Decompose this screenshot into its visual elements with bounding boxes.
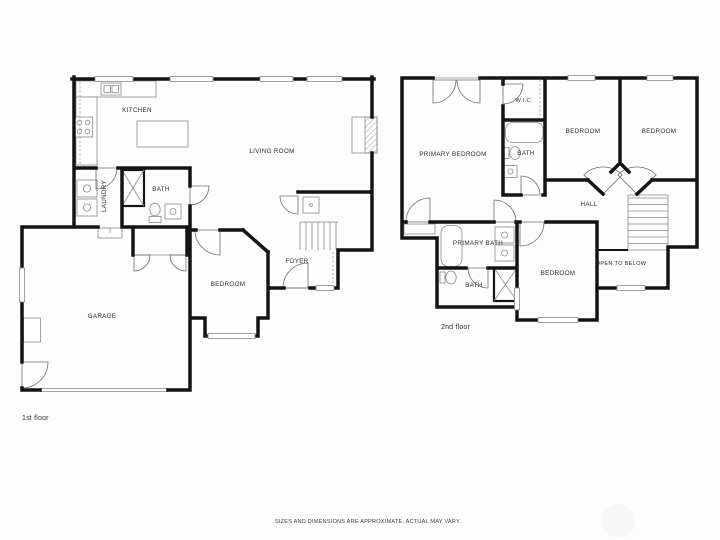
utility-box [24, 318, 41, 342]
garage-fixtures [24, 228, 188, 392]
bedroom-right-label: BEDROOM [642, 128, 677, 135]
primary-bath-label: PRIMARY BATH [453, 240, 503, 247]
doors-1st [22, 168, 308, 388]
stair-foyer-fixtures [284, 197, 338, 288]
wic-label: W.I.C. [515, 98, 532, 104]
floor1-caption: 1st floor [22, 415, 49, 422]
stair-closet-box [303, 197, 319, 213]
entry-door [283, 263, 308, 288]
primary-bedroom-label: PRIMARY BEDROOM [419, 151, 486, 158]
floor-plan-2nd: PRIMARY BEDROOM W.I.C. BATH BEDROOM BEDR… [402, 76, 697, 332]
open-to-below-label: OPEN TO BELOW [596, 261, 647, 267]
garage-closet-door-left [134, 255, 150, 271]
bathtub-icon [506, 123, 544, 143]
vanity-sink-icon [504, 166, 517, 178]
walls-2nd [402, 78, 697, 320]
bedroom-door [195, 230, 220, 255]
dryer-icon [77, 199, 97, 216]
watermark [601, 504, 635, 538]
bath-door [190, 186, 209, 205]
linen-shelf [404, 224, 435, 234]
bath1-label: BATH [152, 186, 170, 193]
garage-side-door [22, 362, 48, 388]
floor-plan-1st: KITCHEN LIVING ROOM BATH LAUNDRY BEDROOM… [20, 77, 378, 423]
laundry-fixtures [77, 180, 97, 216]
bedroom-bottom-door [520, 222, 544, 246]
stair-closet-door [280, 196, 298, 214]
bath-upper-label: BATH [517, 150, 535, 157]
floorplan-drawing: KITCHEN LIVING ROOM BATH LAUNDRY BEDROOM… [0, 0, 720, 540]
living-fixtures [352, 117, 377, 153]
staircase-icon [300, 222, 338, 250]
laundry-label: LAUNDRY [101, 179, 108, 212]
walls-1st [22, 77, 374, 390]
garage-door-icon [40, 388, 168, 391]
disclaimer-text: SIZES AND DIMENSIONS ARE APPROXIMATE, AC… [275, 519, 461, 525]
bedroom-left-door [584, 156, 622, 194]
floorplan-page: KITCHEN LIVING ROOM BATH LAUNDRY BEDROOM… [0, 0, 720, 540]
kitchen-label: KITCHEN [122, 107, 152, 114]
garage-label: GARAGE [88, 313, 117, 320]
bath-lower-label: BATH [465, 282, 483, 289]
hall-label: HALL [581, 201, 598, 208]
bath2-upper-fixtures [504, 80, 543, 178]
bedroom-right-door [618, 156, 656, 194]
staircase-icon [628, 195, 668, 250]
primary-bedroom-door-left [406, 198, 430, 222]
living-room-label: LIVING ROOM [249, 148, 294, 155]
bath-upper-door [521, 176, 540, 195]
floor2-caption: 2nd floor [441, 324, 471, 331]
stove-icon [75, 117, 93, 137]
vanity-sink-icon [165, 204, 181, 219]
bedroom-left-label: BEDROOM [566, 128, 601, 135]
toilet-icon [446, 271, 456, 284]
washer-icon [77, 180, 97, 197]
windows-2nd [515, 76, 674, 323]
primary-closet-door-left [433, 80, 456, 103]
bedroom1-label: BEDROOM [211, 281, 246, 288]
toilet-icon [150, 203, 160, 216]
kitchen-fixtures [75, 81, 189, 165]
primary-bedroom-door-right [494, 200, 516, 222]
primary-closet-door-right [457, 80, 480, 103]
kitchen-island [137, 121, 188, 147]
bath1-fixtures [122, 170, 181, 223]
stairs-2nd [433, 78, 668, 250]
bedroom-bottom-label: BEDROOM [541, 270, 576, 277]
foyer-label: FOYER [285, 258, 308, 265]
garage-closet-door-right [170, 255, 186, 271]
